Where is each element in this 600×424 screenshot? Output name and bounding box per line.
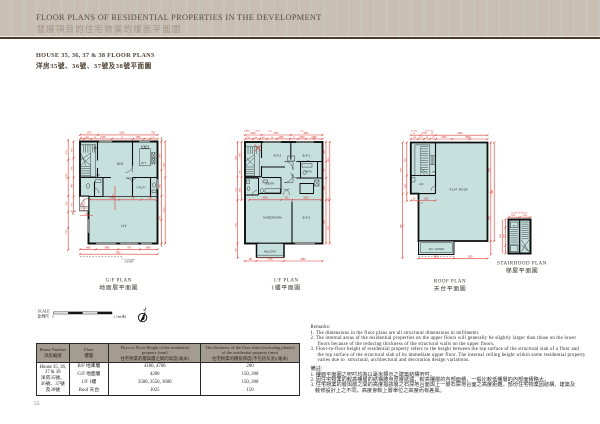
svg-text:50: 50 xyxy=(413,133,415,135)
svg-text:1150: 1150 xyxy=(136,137,142,139)
svg-text:2450: 2450 xyxy=(503,234,505,238)
svg-text:900: 900 xyxy=(261,137,264,139)
svg-text:5485: 5485 xyxy=(104,247,110,249)
svg-text:150: 150 xyxy=(300,131,303,133)
svg-text:2450: 2450 xyxy=(278,137,284,139)
svg-text:75: 75 xyxy=(432,137,434,139)
svg-text:50: 50 xyxy=(80,137,82,139)
svg-text:5950: 5950 xyxy=(465,137,471,139)
svg-text:50 950 175 950 50: 50 950 175 950 50 xyxy=(511,212,527,214)
svg-text:1050: 1050 xyxy=(523,215,527,217)
svg-text:UTILITY: UTILITY xyxy=(137,188,147,190)
svg-text:3750: 3750 xyxy=(273,133,279,135)
svg-text:50: 50 xyxy=(255,137,257,139)
svg-text:2767: 2767 xyxy=(86,133,92,135)
svg-text:2725: 2725 xyxy=(267,259,273,261)
svg-text:SCALE: SCALE xyxy=(38,310,51,314)
svg-text:B.R.1: B.R.1 xyxy=(303,154,311,158)
svg-text:DIN: DIN xyxy=(117,162,124,166)
svg-text:75: 75 xyxy=(271,137,273,139)
svg-text:2.5m(米): 2.5m(米) xyxy=(114,313,127,318)
svg-text:3050: 3050 xyxy=(500,234,502,238)
svg-text:B.R.3: B.R.3 xyxy=(303,216,311,220)
svg-text:2150: 2150 xyxy=(250,133,256,135)
svg-text:900: 900 xyxy=(84,214,87,216)
svg-text:3353: 3353 xyxy=(303,198,309,200)
svg-text:175 50: 175 50 xyxy=(417,202,423,204)
svg-text:地面層平面圖: 地面層平面圖 xyxy=(99,283,138,291)
svg-text:STAIRHOOD PLAN: STAIRHOOD PLAN xyxy=(497,261,547,266)
svg-text:2150: 2150 xyxy=(441,137,447,139)
svg-text:1485: 1485 xyxy=(85,247,91,249)
svg-text:750: 750 xyxy=(151,133,156,135)
svg-text:0: 0 xyxy=(52,314,54,318)
svg-text:1485: 1485 xyxy=(145,247,151,249)
svg-text:1625: 1625 xyxy=(423,198,429,200)
svg-text:10150: 10150 xyxy=(163,206,165,212)
svg-text:M.BEDROOM: M.BEDROOM xyxy=(263,216,282,220)
svg-text:D.BR.2: D.BR.2 xyxy=(244,131,250,133)
svg-text:1150: 1150 xyxy=(511,215,515,217)
svg-text:比例尺: 比例尺 xyxy=(38,313,50,318)
svg-text:梯屋平面圖: 梯屋平面圖 xyxy=(506,266,538,274)
svg-text:ROOF PLAN: ROOF PLAN xyxy=(434,279,466,284)
svg-text:8150: 8150 xyxy=(457,133,463,135)
svg-text:KIT: KIT xyxy=(141,161,146,165)
svg-text:50 175: 50 175 xyxy=(411,130,417,132)
svg-text:3550: 3550 xyxy=(433,256,439,258)
svg-text:UP: UP xyxy=(96,173,100,177)
svg-text:7905: 7905 xyxy=(115,252,121,254)
svg-text:2000: 2000 xyxy=(299,137,305,139)
svg-text:150: 150 xyxy=(151,137,154,139)
svg-text:8150: 8150 xyxy=(119,132,125,134)
svg-text:G/F PLAN: G/F PLAN xyxy=(106,278,132,283)
svg-text:2725: 2725 xyxy=(100,137,106,139)
svg-text:75: 75 xyxy=(293,137,295,139)
svg-text:DN: DN xyxy=(432,172,436,174)
svg-text:2450: 2450 xyxy=(311,137,317,139)
svg-text:50: 50 xyxy=(426,137,428,139)
svg-text:50: 50 xyxy=(94,137,96,139)
svg-text:750: 750 xyxy=(246,137,249,139)
svg-text:4050: 4050 xyxy=(303,133,309,135)
svg-text:B.R.2: B.R.2 xyxy=(274,154,282,158)
svg-text:1樓平面圖: 1樓平面圖 xyxy=(271,283,301,291)
svg-text:FLAT ROOF: FLAT ROOF xyxy=(450,187,469,191)
svg-text:175: 175 xyxy=(419,137,422,139)
svg-text:150: 150 xyxy=(413,137,416,139)
svg-text:1775: 1775 xyxy=(421,133,427,135)
svg-text:天台平面圖: 天台平面圖 xyxy=(434,284,466,292)
svg-text:10250: 10250 xyxy=(66,172,68,178)
svg-text:1/F PLAN: 1/F PLAN xyxy=(274,278,299,283)
svg-text:150: 150 xyxy=(268,131,271,133)
svg-text:50: 50 xyxy=(431,133,433,135)
svg-text:BALCONY: BALCONY xyxy=(264,250,276,253)
svg-text:1065: 1065 xyxy=(82,203,84,207)
svg-text:BATH: BATH xyxy=(305,171,312,174)
svg-text:LIV: LIV xyxy=(121,224,127,228)
svg-text:3860: 3860 xyxy=(300,259,306,261)
svg-text:B.R.2: B.R.2 xyxy=(256,131,261,133)
svg-text:DN: DN xyxy=(94,146,98,150)
svg-text:3048: 3048 xyxy=(262,198,268,200)
svg-text:50 175 50: 50 175 50 xyxy=(425,130,433,132)
svg-text:1880: 1880 xyxy=(85,137,89,139)
svg-text:A/C: A/C xyxy=(419,183,423,186)
svg-text:3350: 3350 xyxy=(467,256,473,258)
svg-text:R.C. COVER: R.C. COVER xyxy=(429,248,444,251)
svg-text:75: 75 xyxy=(121,137,123,139)
